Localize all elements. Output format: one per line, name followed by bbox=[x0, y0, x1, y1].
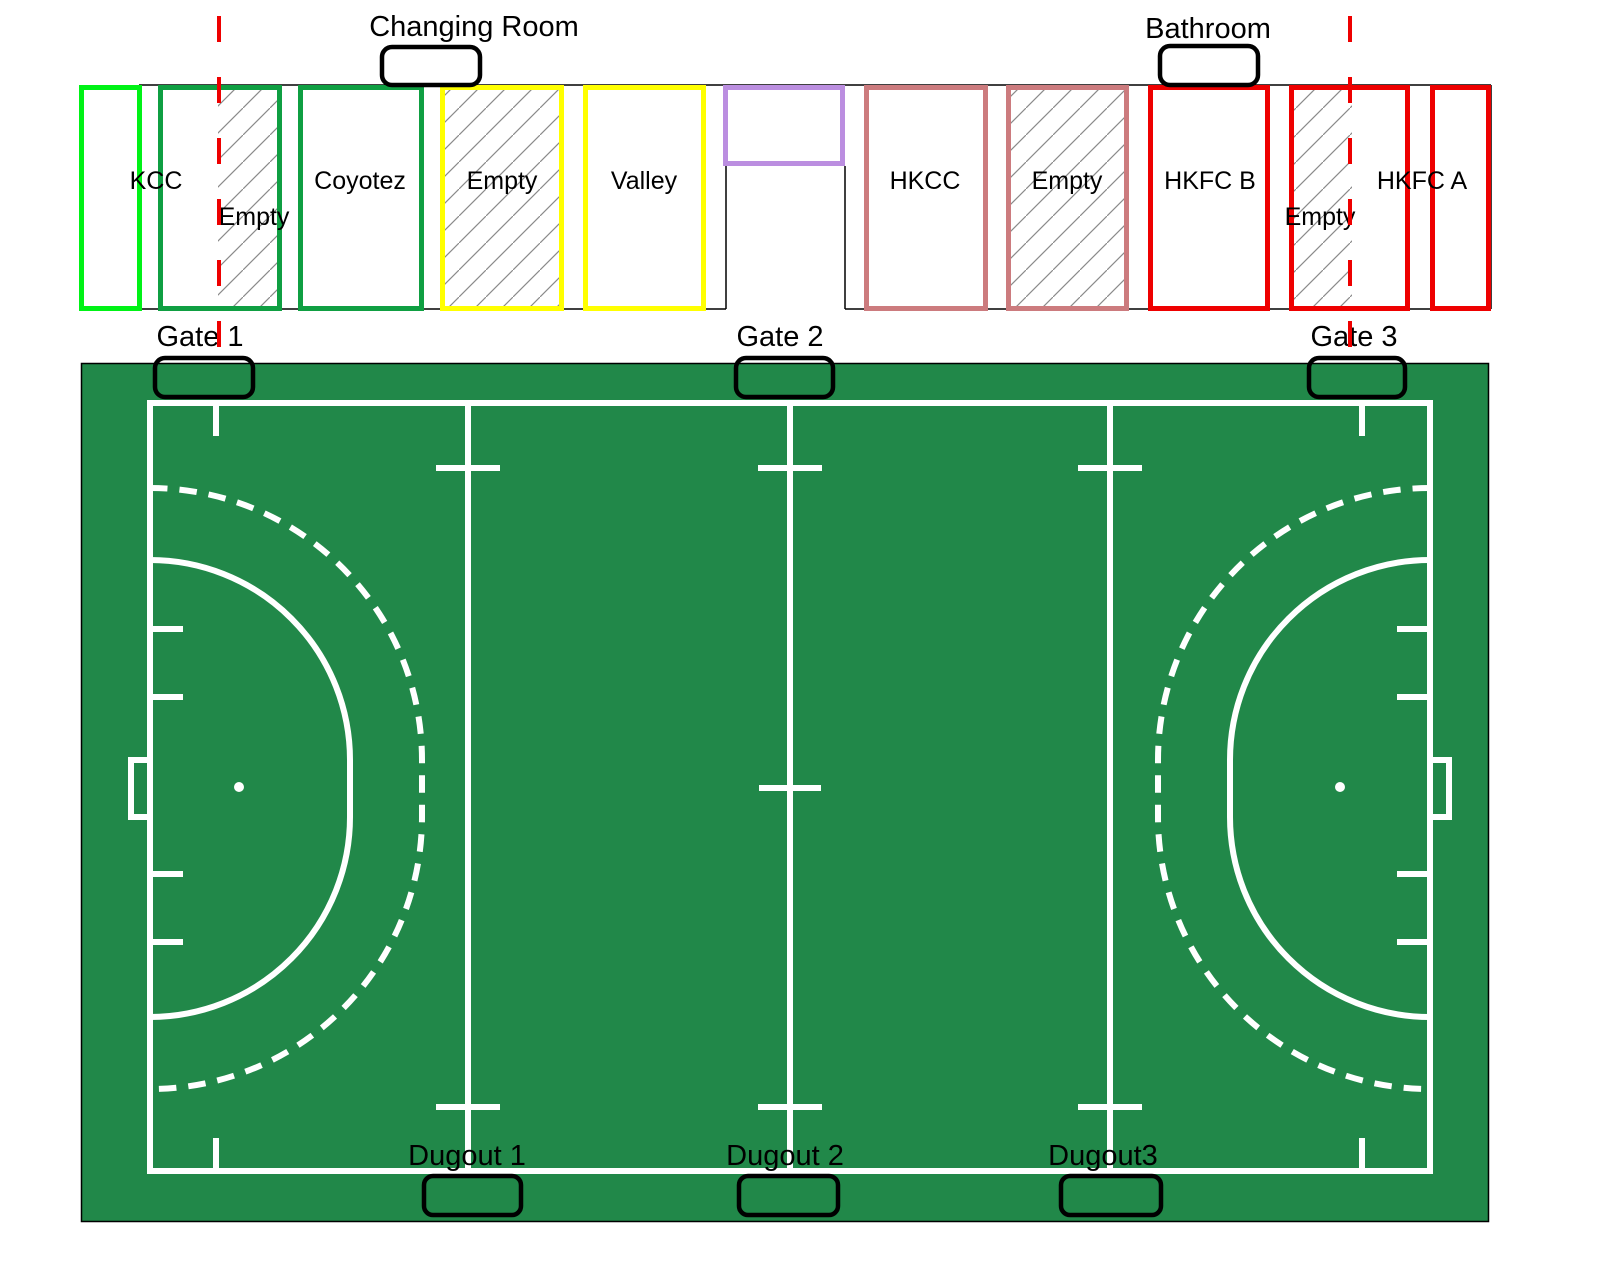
svg-text:HKFC A: HKFC A bbox=[1377, 167, 1468, 195]
svg-text:Changing Room: Changing Room bbox=[369, 11, 579, 43]
svg-text:KCC: KCC bbox=[130, 167, 183, 195]
svg-text:HKCC: HKCC bbox=[890, 167, 961, 195]
svg-text:Dugout 2: Dugout 2 bbox=[726, 1140, 844, 1172]
svg-text:Dugout3: Dugout3 bbox=[1048, 1140, 1158, 1172]
svg-text:Empty: Empty bbox=[467, 167, 538, 195]
svg-text:Gate 3: Gate 3 bbox=[1310, 321, 1397, 353]
svg-text:Coyotez: Coyotez bbox=[314, 167, 406, 195]
svg-text:HKFC B: HKFC B bbox=[1164, 167, 1256, 195]
svg-text:Empty: Empty bbox=[219, 203, 290, 231]
svg-text:Empty: Empty bbox=[1285, 203, 1356, 231]
svg-text:Empty: Empty bbox=[1032, 167, 1103, 195]
svg-text:Gate 1: Gate 1 bbox=[156, 321, 243, 353]
svg-text:Gate 2: Gate 2 bbox=[736, 321, 823, 353]
svg-text:Dugout 1: Dugout 1 bbox=[408, 1140, 526, 1172]
svg-text:Bathroom: Bathroom bbox=[1145, 13, 1271, 45]
svg-text:Valley: Valley bbox=[611, 167, 678, 195]
